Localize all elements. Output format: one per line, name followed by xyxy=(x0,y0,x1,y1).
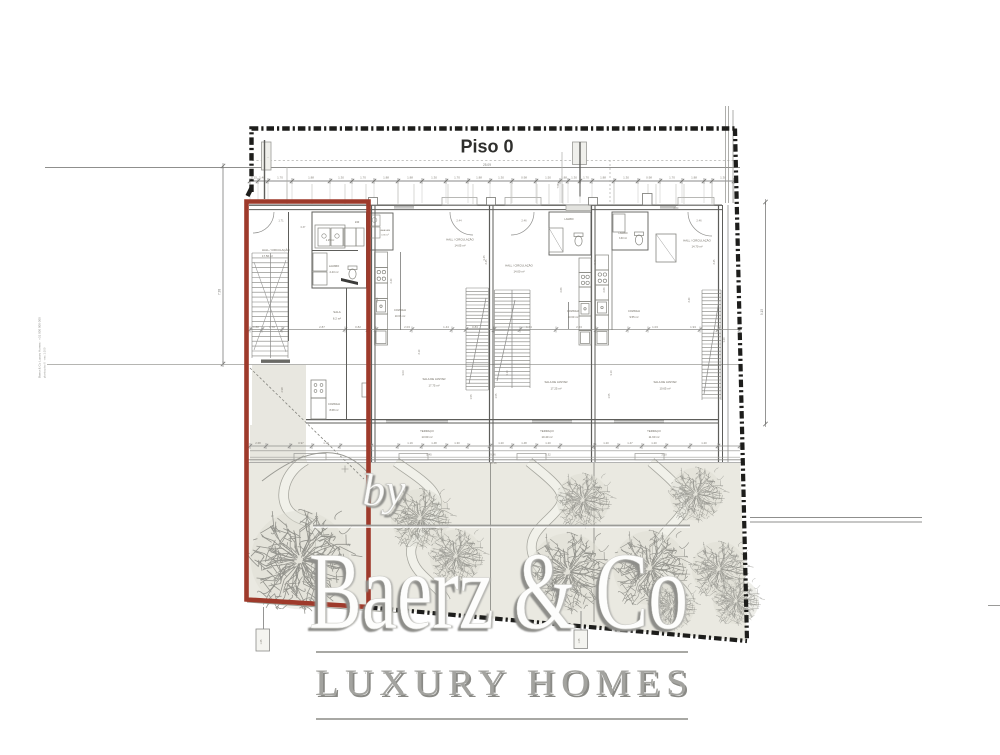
svg-text:2.03: 2.03 xyxy=(404,325,410,329)
svg-text:2.87: 2.87 xyxy=(319,325,325,329)
svg-text:0.82: 0.82 xyxy=(355,325,361,329)
svg-text:9.55 m²: 9.55 m² xyxy=(629,315,638,319)
svg-text:9.06: 9.06 xyxy=(490,452,496,456)
svg-text:HALL / CIRCULAÇÃO: HALL / CIRCULAÇÃO xyxy=(683,238,711,243)
svg-text:25.09: 25.09 xyxy=(483,163,491,167)
svg-text:COZINHA: COZINHA xyxy=(628,309,640,313)
svg-text:TERRAÇO: TERRAÇO xyxy=(420,429,434,433)
svg-text:HALL / CIRCULAÇÃO: HALL / CIRCULAÇÃO xyxy=(505,263,533,268)
svg-text:2.63: 2.63 xyxy=(603,287,606,292)
svg-text:2.46: 2.46 xyxy=(521,219,527,223)
svg-text:1.30: 1.30 xyxy=(623,176,629,180)
svg-text:1.55: 1.55 xyxy=(495,393,498,398)
svg-text:2.43 m²: 2.43 m² xyxy=(329,270,338,274)
svg-text:8.68 m²: 8.68 m² xyxy=(329,408,338,412)
svg-text:1.48: 1.48 xyxy=(521,441,527,445)
svg-text:14.70 m²: 14.70 m² xyxy=(691,245,702,249)
svg-text:5.32: 5.32 xyxy=(545,452,551,456)
svg-text:SALA DE JANTAR: SALA DE JANTAR xyxy=(544,380,567,384)
svg-text:1.20: 1.20 xyxy=(722,337,726,343)
svg-text:14.05 m²: 14.05 m² xyxy=(454,244,465,248)
svg-text:1.03: 1.03 xyxy=(652,325,658,329)
svg-text:LAVABO: LAVABO xyxy=(329,264,339,268)
svg-text:2.63: 2.63 xyxy=(560,287,563,292)
svg-text:3.10: 3.10 xyxy=(609,370,613,376)
svg-text:3.10: 3.10 xyxy=(505,370,509,376)
svg-text:2.46: 2.46 xyxy=(696,219,702,223)
svg-text:11.60 m²: 11.60 m² xyxy=(649,435,660,439)
svg-text:1.88: 1.88 xyxy=(383,176,389,180)
svg-text:10.65 m²: 10.65 m² xyxy=(395,314,406,318)
svg-text:1.70: 1.70 xyxy=(360,176,366,180)
svg-text:17.75 m²: 17.75 m² xyxy=(428,384,439,388)
svg-text:LUXURY HOMES: LUXURY HOMES xyxy=(315,663,694,704)
svg-text:10.40 m²: 10.40 m² xyxy=(541,435,552,439)
svg-text:2.40: 2.40 xyxy=(390,278,393,283)
svg-text:1.50: 1.50 xyxy=(545,176,551,180)
svg-text:1.70: 1.70 xyxy=(454,176,460,180)
svg-text:17.56 m²: 17.56 m² xyxy=(262,254,273,258)
svg-text:1.20: 1.20 xyxy=(701,441,707,445)
svg-text:1.88: 1.88 xyxy=(253,325,259,329)
svg-text:1.88: 1.88 xyxy=(476,176,482,180)
svg-text:3.45: 3.45 xyxy=(594,259,597,264)
svg-text:1.55: 1.55 xyxy=(608,393,611,398)
svg-text:5.45: 5.45 xyxy=(426,452,432,456)
svg-text:1.30: 1.30 xyxy=(431,176,437,180)
svg-text:SALA DE JANTAR: SALA DE JANTAR xyxy=(653,380,676,384)
svg-text:1.30: 1.30 xyxy=(571,176,577,180)
svg-text:1.30: 1.30 xyxy=(454,441,460,445)
svg-text:0.98: 0.98 xyxy=(646,176,652,180)
svg-text:0.97: 0.97 xyxy=(298,441,304,445)
svg-text:1.05: 1.05 xyxy=(260,639,263,644)
svg-text:1.70: 1.70 xyxy=(269,325,275,329)
svg-text:6.2 m²: 6.2 m² xyxy=(333,317,341,321)
svg-text:1.44: 1.44 xyxy=(443,325,449,329)
svg-text:1.30: 1.30 xyxy=(338,176,344,180)
svg-text:1.70: 1.70 xyxy=(583,176,589,180)
svg-text:7.38: 7.38 xyxy=(218,289,222,295)
svg-text:9.15: 9.15 xyxy=(760,309,764,315)
svg-text:0.36 m²: 0.36 m² xyxy=(381,234,389,237)
svg-text:LAVABO: LAVABO xyxy=(618,232,627,235)
svg-text:1.20: 1.20 xyxy=(603,441,609,445)
svg-text:2.68: 2.68 xyxy=(255,441,261,445)
svg-text:3.10: 3.10 xyxy=(418,349,421,354)
svg-text:Baerz & Co: Baerz & Co xyxy=(309,530,688,652)
svg-text:1.88: 1.88 xyxy=(691,176,697,180)
svg-text:TERRAÇO: TERRAÇO xyxy=(647,429,661,433)
svg-text:17.25 m²: 17.25 m² xyxy=(550,387,561,391)
svg-text:2.44: 2.44 xyxy=(456,219,462,223)
svg-text:TERRAÇO: TERRAÇO xyxy=(540,429,554,433)
svg-text:240: 240 xyxy=(355,220,360,224)
svg-text:1.88: 1.88 xyxy=(600,176,606,180)
svg-text:Piso 0: Piso 0 xyxy=(460,137,513,157)
svg-text:1.25 m²: 1.25 m² xyxy=(326,239,335,242)
svg-text:1.71: 1.71 xyxy=(278,219,284,223)
svg-text:1.70: 1.70 xyxy=(277,176,283,180)
svg-text:SALA DE JANTAR: SALA DE JANTAR xyxy=(422,377,445,381)
svg-text:COZINHA: COZINHA xyxy=(394,308,406,312)
svg-text:3.03: 3.03 xyxy=(401,370,405,376)
svg-text:3.30 m²: 3.30 m² xyxy=(619,237,627,240)
svg-text:1.19: 1.19 xyxy=(407,441,413,445)
svg-text:1.55: 1.55 xyxy=(469,394,473,400)
svg-text:planta piso 0 · esc 1:100: planta piso 0 · esc 1:100 xyxy=(43,347,47,378)
svg-text:10.65 m²: 10.65 m² xyxy=(659,387,670,391)
svg-text:3.45: 3.45 xyxy=(713,259,716,264)
svg-text:1.20: 1.20 xyxy=(498,441,504,445)
svg-text:1.20: 1.20 xyxy=(651,441,657,445)
svg-text:COZINHA: COZINHA xyxy=(567,309,579,313)
svg-text:1.48: 1.48 xyxy=(431,441,437,445)
svg-text:HALL / CIRCULAÇÃO: HALL / CIRCULAÇÃO xyxy=(446,237,474,242)
svg-text:3.40: 3.40 xyxy=(688,297,691,302)
svg-text:1.88: 1.88 xyxy=(407,176,413,180)
svg-text:3.40: 3.40 xyxy=(376,297,379,302)
svg-text:13.60 m²: 13.60 m² xyxy=(421,435,432,439)
svg-text:1.88: 1.88 xyxy=(308,176,314,180)
svg-text:1.30: 1.30 xyxy=(498,176,504,180)
svg-text:COZINHA: COZINHA xyxy=(328,402,340,406)
svg-text:1.93: 1.93 xyxy=(690,325,696,329)
svg-text:7.58: 7.58 xyxy=(557,183,560,188)
svg-text:by: by xyxy=(362,464,406,515)
svg-text:LAVAGEM: LAVAGEM xyxy=(380,229,390,232)
svg-text:HALL / CIRCULAÇÃO: HALL / CIRCULAÇÃO xyxy=(262,247,290,252)
svg-text:3.00: 3.00 xyxy=(661,452,667,456)
svg-text:SALA: SALA xyxy=(333,310,340,314)
svg-text:10.60 m²: 10.60 m² xyxy=(568,315,579,319)
svg-text:14.00 m²: 14.00 m² xyxy=(513,270,524,274)
svg-text:1.19: 1.19 xyxy=(323,441,329,445)
svg-text:1.20: 1.20 xyxy=(545,441,551,445)
svg-text:1.47: 1.47 xyxy=(627,441,633,445)
svg-text:0.37: 0.37 xyxy=(301,226,306,229)
svg-text:30.16: 30.16 xyxy=(490,461,497,465)
svg-text:1.70: 1.70 xyxy=(669,176,675,180)
svg-text:LAVABO: LAVABO xyxy=(564,218,573,221)
svg-text:2.98: 2.98 xyxy=(280,387,284,393)
svg-text:3.45: 3.45 xyxy=(485,259,488,264)
svg-text:Baerz & Co Luxury Homes · +31: Baerz & Co Luxury Homes · +31 000 000 00… xyxy=(38,317,42,378)
svg-text:0.98: 0.98 xyxy=(521,176,527,180)
